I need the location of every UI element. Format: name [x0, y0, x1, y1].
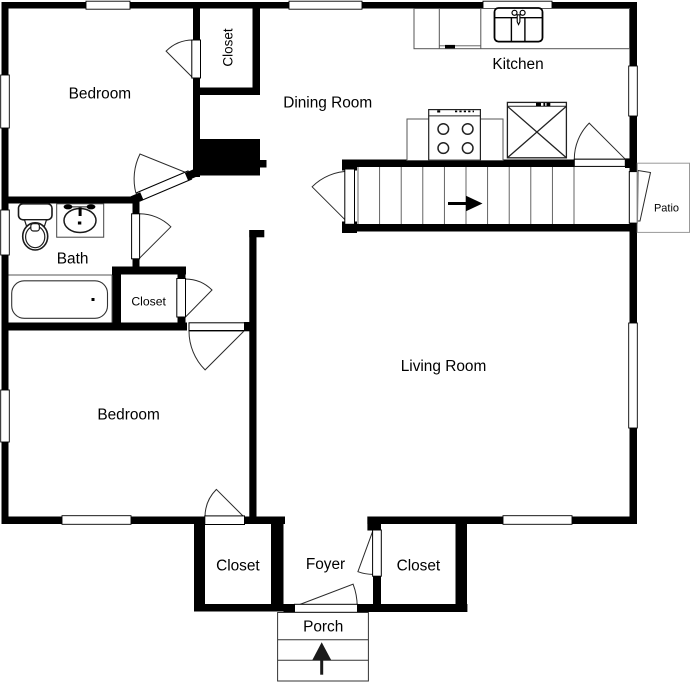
svg-text:Foyer: Foyer [306, 556, 345, 573]
svg-text:Bedroom: Bedroom [97, 406, 159, 423]
svg-text:Dining Room: Dining Room [283, 94, 372, 111]
svg-text:Closet: Closet [221, 28, 236, 67]
svg-text:Porch: Porch [303, 618, 343, 635]
svg-text:Bedroom: Bedroom [69, 86, 131, 103]
svg-text:Living Room: Living Room [401, 358, 487, 375]
svg-text:Kitchen: Kitchen [492, 56, 543, 73]
svg-text:Closet: Closet [216, 558, 260, 575]
svg-text:Patio: Patio [654, 203, 679, 215]
svg-text:Bath: Bath [57, 251, 89, 268]
svg-text:Closet: Closet [131, 294, 166, 308]
svg-text:Closet: Closet [397, 558, 441, 575]
